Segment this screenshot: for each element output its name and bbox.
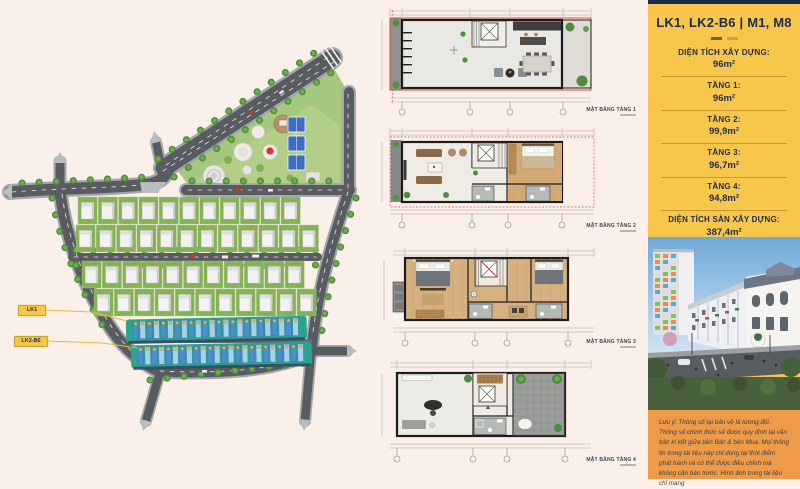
spec-label: TẦNG 1: xyxy=(661,81,787,90)
townhouse-row-lk1 xyxy=(126,316,307,344)
floor-plan-1-drawing xyxy=(376,4,644,122)
grid-bubbles xyxy=(399,214,565,228)
spec-label: TẦNG 2: xyxy=(661,115,787,124)
sports-courts xyxy=(288,117,305,170)
floor-plan-1: MẶT BẰNG TẦNG 1 xyxy=(376,4,644,122)
spec-row: TẦNG 4: 94,8m² xyxy=(661,178,787,212)
grid-bubbles xyxy=(399,102,566,115)
disclaimer-text: Lưu ý: Thông số tại bản vẽ là tương đối.… xyxy=(659,418,789,489)
floor-plan-4-label: MẶT BẰNG TẦNG 4 xyxy=(586,457,636,467)
title-divider xyxy=(648,37,800,40)
spec-row: TẦNG 1: 96m² xyxy=(661,77,787,111)
park-area xyxy=(172,60,349,189)
project-render-photo xyxy=(648,237,800,410)
spec-value: 99,9m² xyxy=(661,126,787,137)
spec-label: DIỆN TÍCH SÀN XÂY DỰNG: xyxy=(661,215,787,224)
spec-value: 96m² xyxy=(661,59,787,70)
unit-title: LK1, LK2-B6 | M1, M8 xyxy=(648,15,800,30)
map-label-lk1: LK1 xyxy=(18,305,46,316)
spec-value: 94,8m² xyxy=(661,193,787,204)
spec-row: DIỆN TÍCH XÂY DỰNG: 96m² xyxy=(661,44,787,78)
spec-label: DIỆN TÍCH XÂY DỰNG: xyxy=(661,48,787,57)
spec-value: 96,7m² xyxy=(661,160,787,171)
spec-row: TẦNG 2: 99,9m² xyxy=(661,111,787,145)
tower xyxy=(653,249,694,335)
spec-label: TẦNG 4: xyxy=(661,182,787,191)
floor-plan-3: MẶT BẰNG TẦNG 3 xyxy=(376,244,644,356)
panel-top-strip xyxy=(648,0,800,4)
spec-label: TẦNG 3: xyxy=(661,148,787,157)
brochure-page: LK1 LK2-B6 xyxy=(0,0,800,479)
floor-plan-1-label: MẶT BẰNG TẦNG 1 xyxy=(586,107,636,117)
floor-plan-3-label: MẶT BẰNG TẦNG 3 xyxy=(586,339,636,349)
disclaimer-note: Lưu ý: Thông số tại bản vẽ là tương đối.… xyxy=(648,410,800,479)
master-plan-map: LK1 LK2-B6 xyxy=(0,0,375,479)
floor-plan-2-label: MẶT BẰNG TẦNG 2 xyxy=(586,223,636,233)
info-panel: LK1, LK2-B6 | M1, M8 DIỆN TÍCH XÂY DỰNG:… xyxy=(648,0,800,479)
spec-value: 96m² xyxy=(661,93,787,104)
spec-value: 387,4m² xyxy=(661,227,787,238)
floor-plan-4: MẶT BẰNG TẦNG 4 xyxy=(376,356,644,474)
spec-row: TẦNG 3: 96,7m² xyxy=(661,144,787,178)
grid-bubbles xyxy=(402,332,571,346)
corner-building xyxy=(744,262,800,357)
master-plan-svg xyxy=(0,0,375,479)
spec-list: DIỆN TÍCH XÂY DỰNG: 96m² TẦNG 1: 96m² TẦ… xyxy=(648,44,800,244)
floor-plan-2: MẶT BẰNG TẦNG 2 xyxy=(376,124,644,242)
map-label-lk2-b6: LK2-B6 xyxy=(14,336,48,347)
townhouse-row-lk2 xyxy=(131,342,312,370)
grid-bubbles xyxy=(394,448,568,462)
bathroom xyxy=(474,418,506,435)
